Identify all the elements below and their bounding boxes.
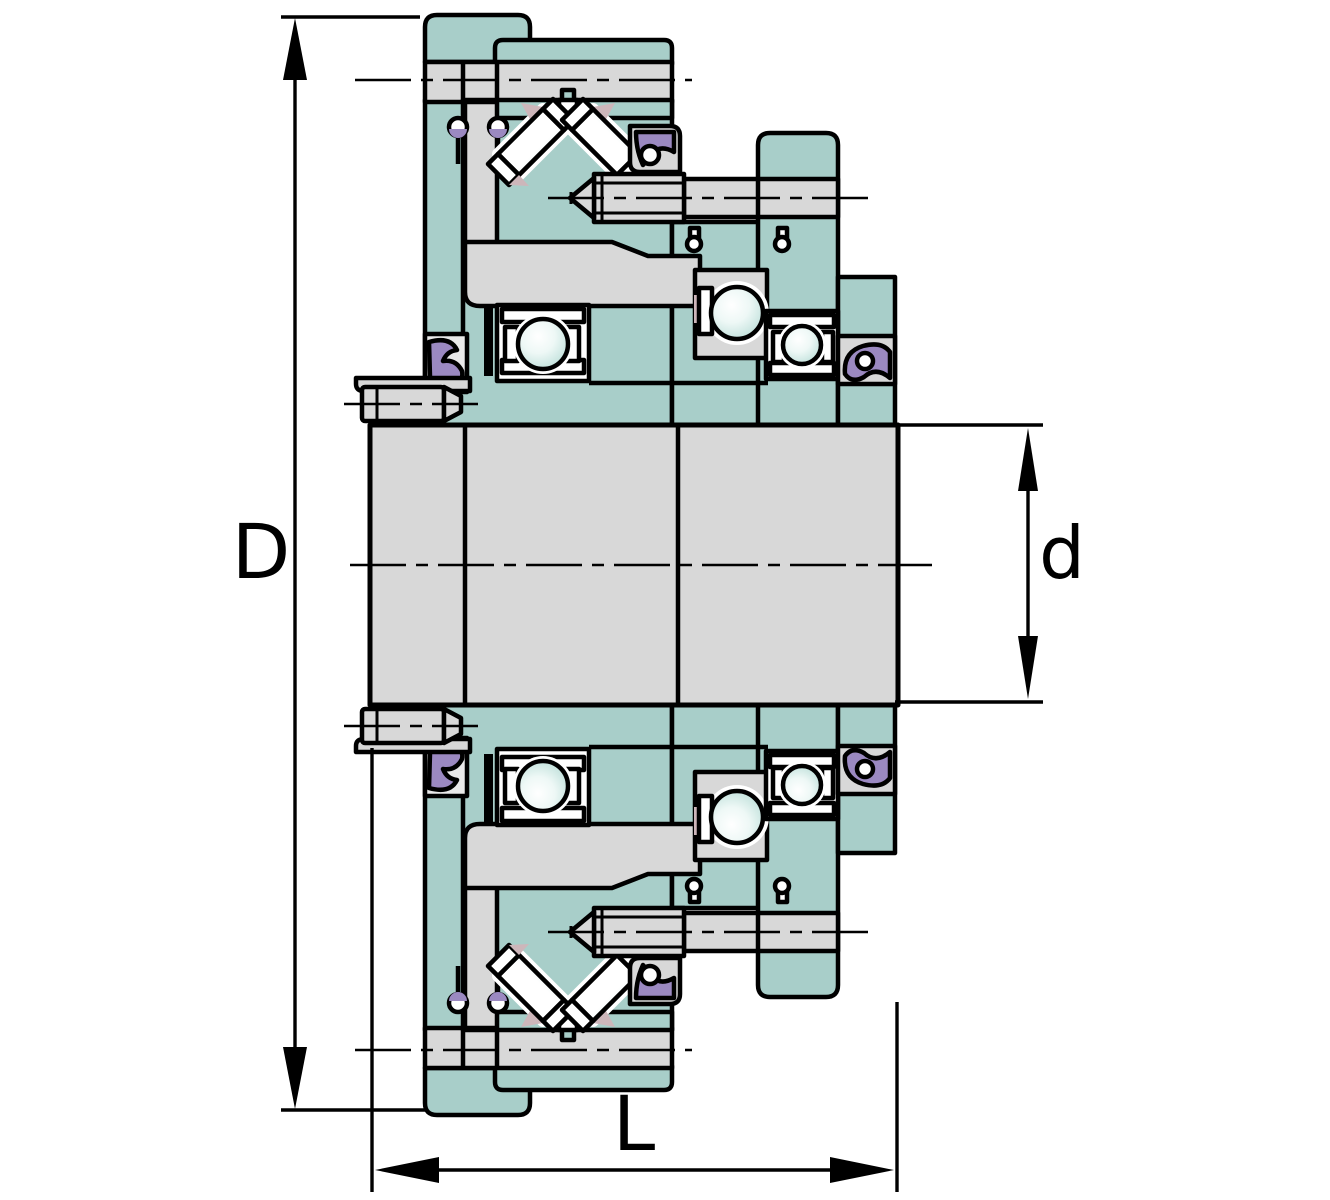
cross-section-drawing: D d L [0,0,1330,1200]
seal-right [838,336,895,384]
grease-screw [344,387,478,421]
ball-bearing-right [766,311,838,379]
dimension-d: d [895,425,1085,702]
bearing-ball [518,319,568,369]
bearing-ball [711,287,763,339]
housing-half-assembly-mirrored [344,705,895,1115]
bearing-ball [783,326,821,364]
housing-half-assembly [344,15,895,425]
dimension-label-d: d [1039,511,1085,595]
retainer-seal [630,126,680,172]
arrowhead-left [375,1157,439,1183]
dimension-label-D: D [232,507,291,596]
dimension-label-L: L [613,1079,655,1168]
ball-bearing-left [484,305,589,381]
spacer-bar [484,306,493,376]
arrowhead-down [283,1047,307,1109]
arrowhead-up [1018,428,1038,491]
arrowhead-up [283,18,307,80]
locking-bolt [548,174,872,222]
arrowhead-down [1018,636,1038,699]
arrowhead-right [830,1157,894,1183]
seal-left [356,334,470,392]
ball-bearing-center [694,281,769,345]
mounting-flange [355,62,692,118]
bearing-unit-cross-section-figure: D d L [0,0,1330,1200]
